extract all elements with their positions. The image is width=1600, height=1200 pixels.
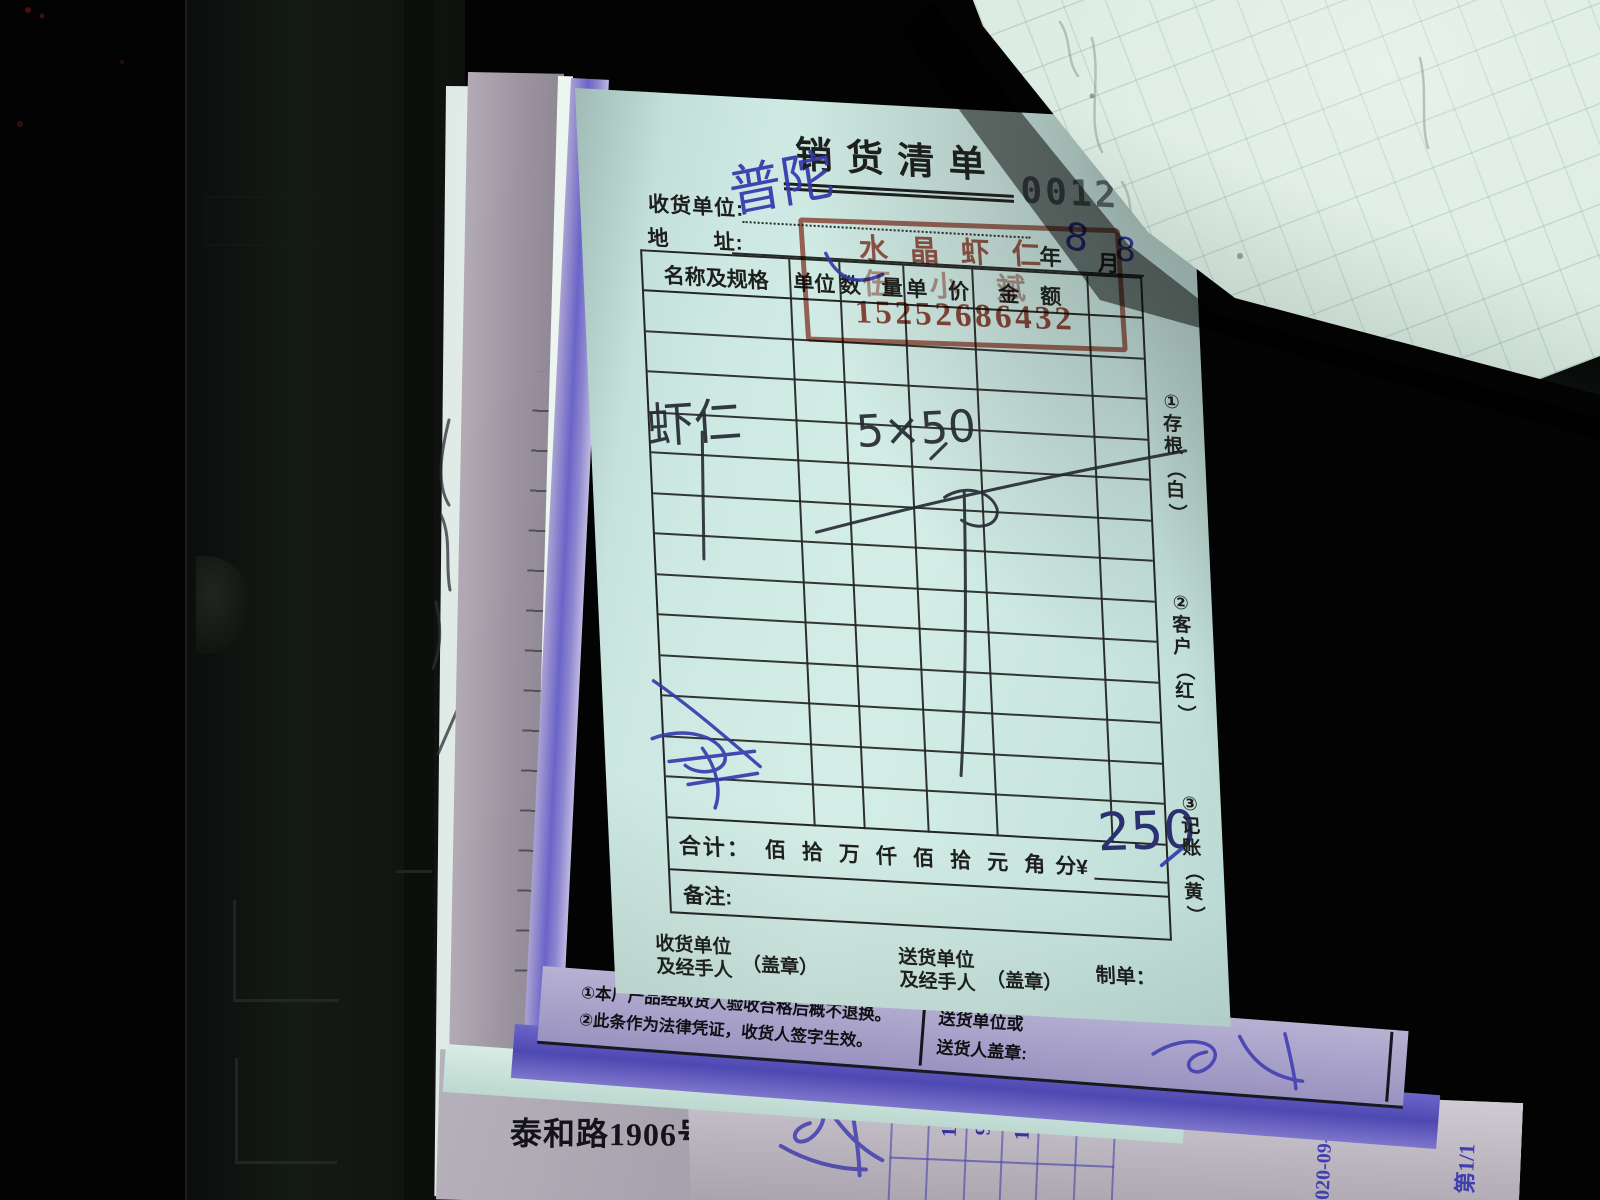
consignee-seal-label: （盖章）	[741, 949, 818, 980]
photo-of-sales-receipt: 泰和路1906号A03-04 100 90 100 额 020-09-08 第1…	[0, 0, 1600, 1200]
deliverer-sign-block: 送货单位及经手人	[898, 946, 976, 996]
copy-legend-stub: ①存根（白）	[1162, 392, 1187, 525]
film-specks	[0, 0, 200, 160]
side-receipt-page: 第1/1	[1446, 1108, 1483, 1200]
maker-label: 制单：	[1095, 965, 1156, 991]
deliverer-seal-label: （盖章）	[986, 964, 1063, 995]
sales-receipt-sheet: 销货清单 0012 收货单位: 地 址: 年 月 8 8 普陀 名称及规格 单位…	[575, 88, 1231, 1027]
strip-signature-scribble	[1125, 1010, 1350, 1104]
door-groove-bottom	[235, 1058, 337, 1164]
consignee-sign-block: 收货单位及经手人	[655, 932, 733, 982]
copy-legend-customer: ②客户（红）	[1171, 593, 1196, 726]
strip-end-line	[1385, 1032, 1393, 1102]
copy-legend-accounting: ③记账（黄）	[1180, 794, 1205, 927]
door-groove-top	[233, 900, 339, 1002]
door-panel-line	[205, 196, 345, 246]
door-groove-small	[396, 870, 432, 873]
